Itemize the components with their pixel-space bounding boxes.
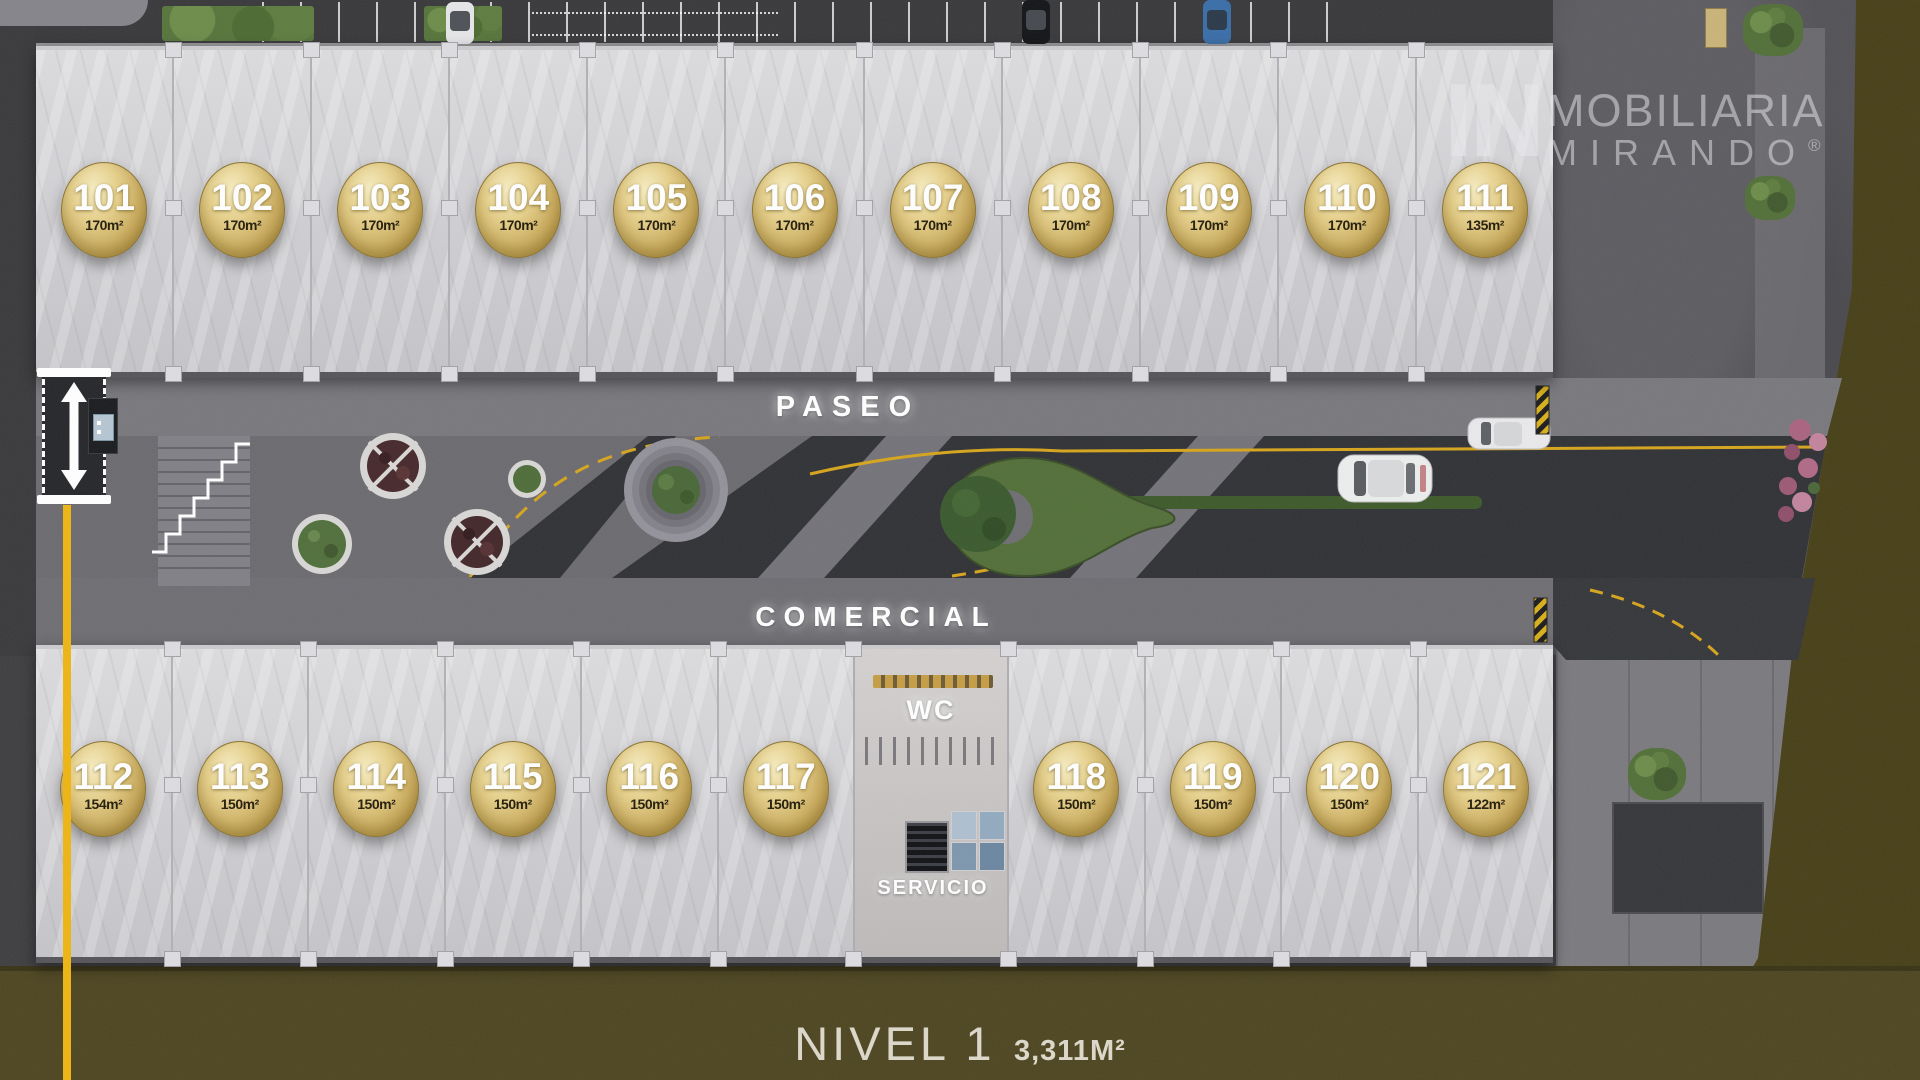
pilaster — [300, 641, 317, 657]
unit-badge[interactable]: 120 150m² — [1306, 741, 1392, 837]
unit-number: 112 — [61, 758, 145, 795]
pilaster — [165, 42, 182, 58]
pilaster — [164, 777, 181, 793]
unit-cell: 121 122m² — [1419, 649, 1554, 957]
unit-number: 120 — [1307, 758, 1391, 795]
unit-badge[interactable]: 112 154m² — [60, 741, 146, 837]
unit-cell: 112 154m² — [36, 649, 173, 957]
tree-shadow — [982, 517, 1006, 541]
tree — [940, 476, 1016, 552]
pilaster — [717, 42, 734, 58]
unit-area: 170m² — [476, 217, 560, 233]
servicio-label: SERVICIO — [835, 877, 1031, 900]
unit-area: 150m² — [334, 796, 418, 812]
paseo-label: PASEO — [698, 391, 998, 424]
pilaster — [437, 777, 454, 793]
unit-badge[interactable]: 117 150m² — [743, 741, 829, 837]
pilaster — [1408, 366, 1425, 382]
unit-area: 122m² — [1444, 796, 1528, 812]
skylight — [951, 842, 977, 871]
gold-stud-strip — [873, 675, 993, 688]
pilaster — [1408, 200, 1425, 216]
logo: IN MOBILIARIA MIRANDO® — [1444, 80, 1825, 173]
unit-area: 170m² — [1305, 217, 1389, 233]
unit-badge[interactable]: 109 170m² — [1166, 162, 1252, 258]
pilaster — [710, 641, 727, 657]
pilaster — [1410, 777, 1427, 793]
unit-number: 109 — [1167, 179, 1251, 216]
unit-cell: 120 150m² — [1282, 649, 1419, 957]
unit-cell: 118 150m² — [1009, 649, 1146, 957]
unit-cell: 114 150m² — [309, 649, 446, 957]
pilaster — [994, 42, 1011, 58]
pilaster — [845, 641, 862, 657]
unit-number: 113 — [198, 758, 282, 795]
unit-number: 118 — [1034, 758, 1118, 795]
site-plan: 101 170m² 102 170m² 103 — [0, 0, 1920, 1080]
pilaster — [1410, 951, 1427, 967]
pilaster — [845, 951, 862, 967]
pilaster — [1132, 366, 1149, 382]
pilaster — [165, 366, 182, 382]
planter-small-green — [508, 460, 546, 498]
pilaster — [1137, 777, 1154, 793]
pilaster — [717, 200, 734, 216]
skylight — [979, 811, 1005, 840]
olive-band-edge — [0, 966, 1920, 971]
cabin-glass — [93, 414, 114, 441]
pilaster — [573, 951, 590, 967]
planter-maroon — [360, 433, 426, 499]
unit-area: 150m² — [1171, 796, 1255, 812]
level-summary: NIVEL 1 3,311M² — [0, 1016, 1920, 1071]
unit-cell: 115 150m² — [446, 649, 583, 957]
unit-area: 154m² — [61, 796, 145, 812]
pilaster — [165, 200, 182, 216]
pilaster — [1137, 951, 1154, 967]
unit-number: 107 — [891, 179, 975, 216]
unit-badge[interactable]: 101 170m² — [61, 162, 147, 258]
skylight — [951, 811, 977, 840]
unit-area: 170m² — [338, 217, 422, 233]
logo-name: MOBILIARIA — [1547, 88, 1825, 133]
fountain — [624, 438, 728, 542]
unit-number: 103 — [338, 179, 422, 216]
unit-cell: 116 150m² — [582, 649, 719, 957]
unit-badge[interactable]: 103 170m² — [337, 162, 423, 258]
unit-area: 170m² — [1029, 217, 1113, 233]
unit-badge[interactable]: 118 150m² — [1033, 741, 1119, 837]
unit-cell: 119 150m² — [1146, 649, 1283, 957]
unit-number: 105 — [614, 179, 698, 216]
unit-badge[interactable]: 107 170m² — [890, 162, 976, 258]
comercial-label: COMERCIAL — [718, 601, 1034, 633]
pilaster — [1410, 641, 1427, 657]
car-on-road — [1338, 455, 1432, 502]
logo-in-monogram: IN — [1444, 80, 1542, 163]
pilaster — [573, 777, 590, 793]
unit-number: 106 — [753, 179, 837, 216]
planter-green — [292, 514, 352, 574]
pilaster — [300, 951, 317, 967]
pilaster — [856, 42, 873, 58]
unit-area: 150m² — [198, 796, 282, 812]
unit-number: 101 — [62, 179, 146, 216]
pilaster — [164, 641, 181, 657]
unit-cell: 109 170m² — [1141, 50, 1279, 372]
unit-badge[interactable]: 108 170m² — [1028, 162, 1114, 258]
pilaster — [710, 951, 727, 967]
unit-number: 108 — [1029, 179, 1113, 216]
unit-badge[interactable]: 121 122m² — [1443, 741, 1529, 837]
unit-area: 170m² — [1167, 217, 1251, 233]
pilaster — [441, 366, 458, 382]
unit-badge[interactable]: 113 150m² — [197, 741, 283, 837]
unit-badge[interactable]: 119 150m² — [1170, 741, 1256, 837]
service-core: WC SERVICIO — [853, 649, 1009, 957]
unit-area: 150m² — [1307, 796, 1391, 812]
unit-cell: 105 170m² — [588, 50, 726, 372]
registered-mark: ® — [1808, 136, 1821, 155]
pilaster — [1408, 42, 1425, 58]
pilaster — [303, 366, 320, 382]
pilaster — [717, 366, 734, 382]
pilaster — [437, 951, 454, 967]
skylight — [979, 842, 1005, 871]
unit-number: 110 — [1305, 179, 1389, 216]
unit-cell: 102 170m² — [174, 50, 312, 372]
unit-area: 170m² — [62, 217, 146, 233]
pilaster — [1132, 200, 1149, 216]
pilaster — [573, 641, 590, 657]
pilaster — [303, 200, 320, 216]
unit-badge[interactable]: 116 150m² — [606, 741, 692, 837]
logo-text: MOBILIARIA MIRANDO® — [1547, 88, 1825, 173]
pilaster — [1270, 42, 1287, 58]
unit-area: 150m² — [471, 796, 555, 812]
pilaster — [1273, 777, 1290, 793]
pilaster — [994, 200, 1011, 216]
unit-cell: 103 170m² — [312, 50, 450, 372]
unit-cell: 113 150m² — [173, 649, 310, 957]
tree-highlight — [952, 489, 980, 517]
unit-number: 121 — [1444, 758, 1528, 795]
unit-number: 111 — [1443, 179, 1527, 216]
pilaster — [303, 42, 320, 58]
unit-cell: 101 170m² — [36, 50, 174, 372]
unit-badge[interactable]: 105 170m² — [613, 162, 699, 258]
unit-area: 170m² — [614, 217, 698, 233]
unit-number: 115 — [471, 758, 555, 795]
unit-cell: 106 170m² — [726, 50, 864, 372]
pilaster — [164, 951, 181, 967]
building-top-row: 101 170m² 102 170m² 103 — [36, 46, 1553, 378]
wc-label: WC — [855, 695, 1007, 726]
pilaster — [994, 366, 1011, 382]
cabin-light — [97, 421, 101, 425]
pilaster — [579, 42, 596, 58]
pilaster — [1270, 200, 1287, 216]
logo-sub: MIRANDO® — [1547, 133, 1825, 173]
unit-badge[interactable]: 115 150m² — [470, 741, 556, 837]
stairwell — [905, 821, 949, 873]
unit-badge[interactable]: 110 170m² — [1304, 162, 1390, 258]
barrier-gate — [1534, 598, 1547, 642]
pilaster — [856, 366, 873, 382]
pilaster — [1273, 641, 1290, 657]
unit-number: 102 — [200, 179, 284, 216]
pilaster — [441, 42, 458, 58]
pilaster — [710, 777, 727, 793]
pilaster — [579, 200, 596, 216]
unit-number: 114 — [334, 758, 418, 795]
pilaster — [437, 641, 454, 657]
unit-number: 104 — [476, 179, 560, 216]
cabin-light — [97, 430, 101, 434]
pilaster — [1132, 42, 1149, 58]
unit-number: 117 — [744, 758, 828, 795]
unit-cell: 107 170m² — [865, 50, 1003, 372]
unit-cell: 110 170m² — [1279, 50, 1417, 372]
unit-area: 170m² — [891, 217, 975, 233]
rack-hatch — [865, 737, 1001, 765]
unit-badge[interactable]: 102 170m² — [199, 162, 285, 258]
planter-maroon — [444, 509, 510, 575]
pilaster — [441, 200, 458, 216]
pilaster — [1270, 366, 1287, 382]
elevator-cabin — [88, 398, 118, 454]
unit-area: 150m² — [744, 796, 828, 812]
unit-area: 135m² — [1443, 217, 1527, 233]
pilaster — [1137, 641, 1154, 657]
pilaster — [1273, 951, 1290, 967]
barrier-gate — [1536, 386, 1549, 434]
pilaster — [1000, 951, 1017, 967]
section-reference-line — [63, 505, 71, 1080]
unit-cell: 117 150m² — [719, 649, 854, 957]
unit-area: 170m² — [753, 217, 837, 233]
pilaster — [300, 777, 317, 793]
unit-cell: 108 170m² — [1003, 50, 1141, 372]
pilaster — [856, 200, 873, 216]
unit-number: 119 — [1171, 758, 1255, 795]
pilaster — [1000, 641, 1017, 657]
building-bottom-row: 112 154m² 113 150m² 114 — [36, 645, 1553, 963]
unit-badge[interactable]: 114 150m² — [333, 741, 419, 837]
unit-area: 150m² — [607, 796, 691, 812]
unit-badge[interactable]: 106 170m² — [752, 162, 838, 258]
unit-badge[interactable]: 104 170m² — [475, 162, 561, 258]
unit-area: 150m² — [1034, 796, 1118, 812]
pilaster — [579, 366, 596, 382]
unit-area: 170m² — [200, 217, 284, 233]
level-name: NIVEL 1 — [794, 1017, 995, 1070]
unit-number: 116 — [607, 758, 691, 795]
unit-cell: 104 170m² — [450, 50, 588, 372]
level-total-area: 3,311M² — [1014, 1035, 1126, 1067]
